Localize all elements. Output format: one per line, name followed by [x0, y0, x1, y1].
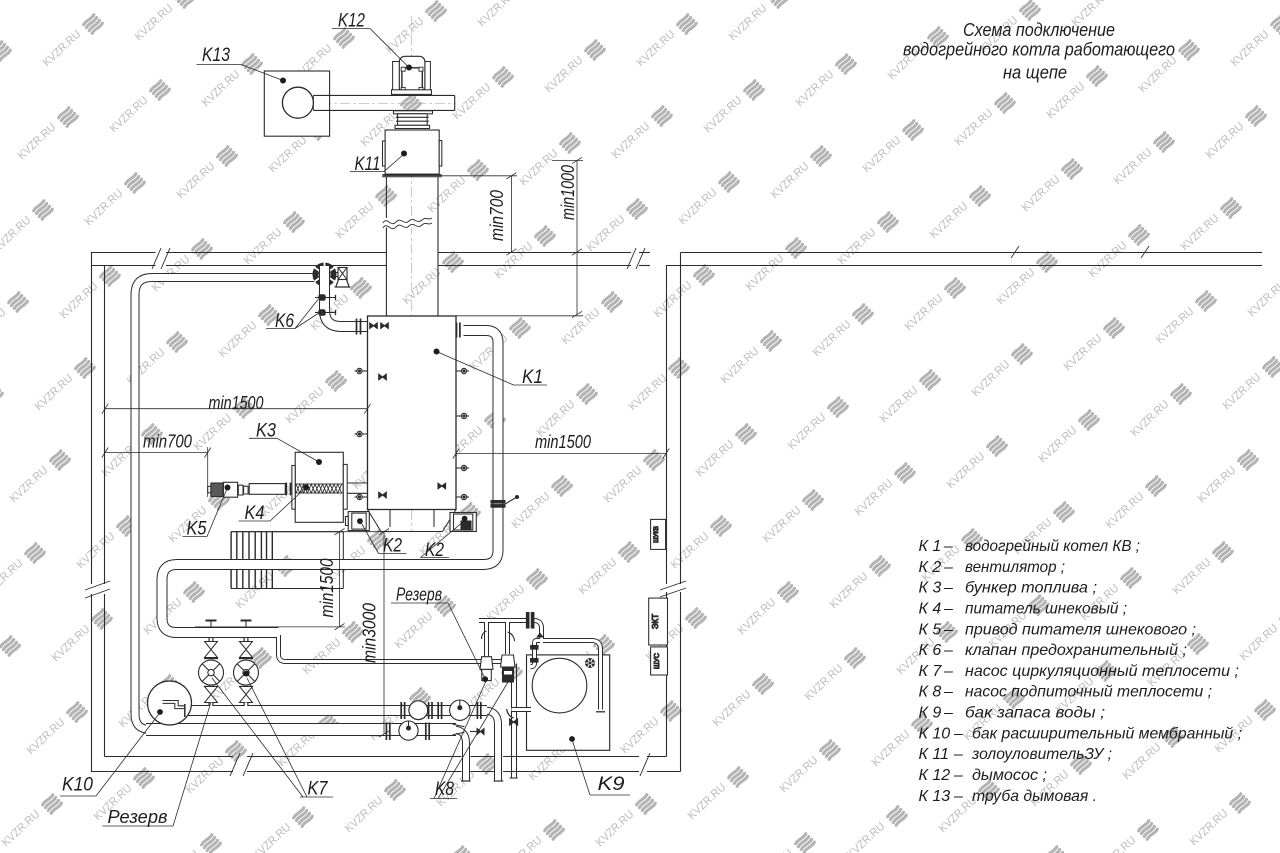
- svg-text:K7: K7: [308, 779, 329, 800]
- svg-text:питатель шнековый ;: питатель шнековый ;: [965, 601, 1127, 618]
- svg-text:К 7: К 7: [919, 663, 943, 680]
- svg-text:K2: K2: [383, 536, 402, 557]
- svg-text:min1500: min1500: [535, 432, 591, 452]
- svg-text:ШУС: ШУС: [654, 653, 661, 669]
- svg-text:ШУКВ: ШУКВ: [654, 526, 660, 543]
- svg-text:–: –: [943, 642, 953, 659]
- svg-text:К 2: К 2: [919, 559, 942, 576]
- svg-text:–: –: [943, 538, 953, 555]
- svg-text:–: –: [943, 705, 953, 722]
- svg-text:–: –: [953, 767, 963, 784]
- svg-text:дымосос ;: дымосос ;: [972, 767, 1047, 784]
- svg-text:К 3: К 3: [919, 580, 942, 597]
- svg-text:–: –: [943, 663, 953, 680]
- svg-text:min1000: min1000: [558, 165, 578, 220]
- svg-text:золоуловительЗУ ;: золоуловительЗУ ;: [971, 746, 1112, 763]
- svg-text:Резерв: Резерв: [396, 585, 442, 605]
- svg-text:–: –: [953, 725, 963, 742]
- svg-text:на щепе: на щепе: [1003, 63, 1067, 83]
- svg-text:клапан предохранительный ;: клапан предохранительный ;: [965, 642, 1187, 659]
- svg-text:К 4: К 4: [919, 601, 942, 618]
- svg-text:K2: K2: [425, 540, 444, 561]
- svg-text:водогрейного котла работающего: водогрейного котла работающего: [903, 40, 1175, 60]
- svg-text:Резерв: Резерв: [108, 807, 168, 827]
- svg-text:привод питателя шнекового ;: привод питателя шнекового ;: [965, 621, 1196, 638]
- svg-text:K12: K12: [338, 11, 365, 32]
- svg-text:min1500: min1500: [209, 393, 264, 413]
- svg-text:–: –: [953, 788, 963, 805]
- svg-text:–: –: [943, 601, 953, 618]
- svg-text:К 8: К 8: [919, 684, 942, 701]
- svg-text:бак расширительный мембранный: бак расширительный мембранный ;: [972, 725, 1242, 742]
- svg-text:ЭКТ: ЭКТ: [651, 614, 660, 629]
- svg-text:K9: K9: [598, 774, 625, 795]
- svg-text:min1500: min1500: [317, 559, 337, 618]
- svg-text:K10: K10: [62, 775, 93, 796]
- svg-text:вентилятор ;: вентилятор ;: [965, 559, 1065, 576]
- svg-text:бункер топлива ;: бункер топлива ;: [965, 580, 1097, 597]
- svg-text:К 5: К 5: [919, 621, 942, 638]
- svg-text:К 10: К 10: [919, 725, 951, 742]
- svg-text:K4: K4: [245, 503, 265, 524]
- svg-text:K6: K6: [275, 311, 294, 332]
- svg-text:насос циркуляционный теплосети: насос циркуляционный теплосети ;: [965, 663, 1239, 680]
- svg-text:K13: K13: [202, 45, 230, 66]
- svg-text:K8: K8: [435, 779, 454, 800]
- svg-text:Схема подключение: Схема подключение: [963, 20, 1115, 40]
- svg-text:К 12: К 12: [919, 767, 951, 784]
- svg-text:К 13: К 13: [919, 788, 951, 805]
- svg-text:–: –: [943, 559, 953, 576]
- svg-text:К 1: К 1: [919, 538, 942, 555]
- svg-text:труба дымовая .: труба дымовая .: [972, 788, 1097, 805]
- svg-text:–: –: [943, 621, 953, 638]
- svg-text:min700: min700: [143, 432, 192, 452]
- svg-text:min3000: min3000: [360, 603, 380, 663]
- svg-text:водогрейный котел КВ ;: водогрейный котел КВ ;: [965, 538, 1140, 555]
- svg-text:К 11: К 11: [919, 746, 949, 763]
- svg-text:бак запаса воды ;: бак запаса воды ;: [965, 705, 1105, 722]
- svg-text:min700: min700: [487, 190, 507, 241]
- svg-text:K3: K3: [256, 421, 276, 442]
- svg-text:К 6: К 6: [919, 642, 942, 659]
- svg-text:K5: K5: [187, 519, 207, 540]
- svg-text:–: –: [953, 746, 963, 763]
- svg-text:–: –: [943, 684, 953, 701]
- svg-text:K1: K1: [522, 367, 543, 388]
- svg-text:–: –: [943, 580, 953, 597]
- svg-text:K11: K11: [355, 154, 381, 175]
- svg-text:К 9: К 9: [919, 705, 942, 722]
- svg-text:насос подпиточный теплосети ;: насос подпиточный теплосети ;: [965, 684, 1212, 701]
